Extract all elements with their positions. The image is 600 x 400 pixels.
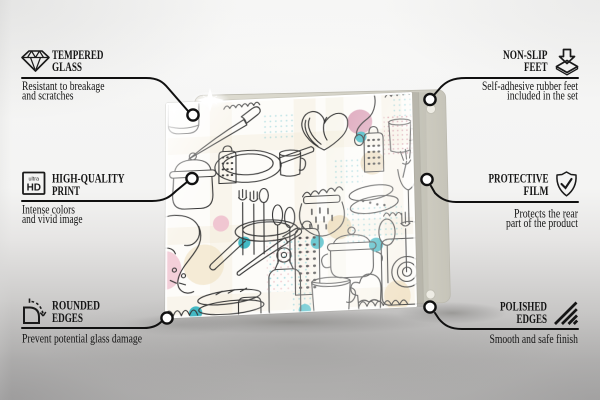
svg-text:Smooth and safe finish: Smooth and safe finish bbox=[490, 332, 579, 346]
svg-text:and scratches: and scratches bbox=[22, 89, 74, 103]
svg-text:Prevent potential glass damage: Prevent potential glass damage bbox=[22, 332, 142, 346]
svg-text:GLASS: GLASS bbox=[52, 60, 82, 74]
svg-text:HD: HD bbox=[27, 183, 41, 194]
svg-text:PRINT: PRINT bbox=[52, 184, 80, 198]
svg-text:EDGES: EDGES bbox=[517, 312, 548, 326]
svg-text:part of the product: part of the product bbox=[506, 216, 578, 230]
svg-text:FILM: FILM bbox=[524, 184, 549, 198]
svg-text:and vivid image: and vivid image bbox=[22, 212, 83, 226]
svg-text:EDGES: EDGES bbox=[52, 311, 83, 325]
svg-text:FEET: FEET bbox=[524, 60, 548, 74]
svg-text:included in the set: included in the set bbox=[507, 89, 578, 103]
